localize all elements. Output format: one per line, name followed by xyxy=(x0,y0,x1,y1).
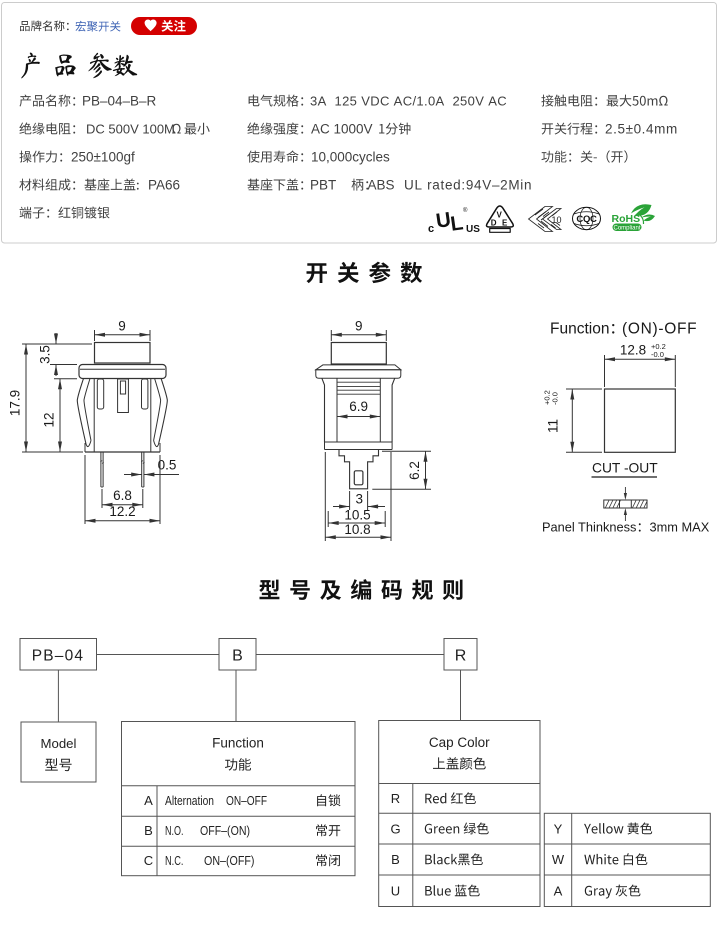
svg-text:9: 9 xyxy=(118,319,126,334)
svg-text:10.5: 10.5 xyxy=(344,508,370,523)
svg-text:AC 1000V: AC 1000V xyxy=(311,122,373,137)
svg-text:ABS: ABS xyxy=(368,178,395,193)
svg-text:2.5±0.4mm: 2.5±0.4mm xyxy=(605,122,678,137)
svg-text:9: 9 xyxy=(355,319,363,334)
svg-text:D: D xyxy=(491,218,497,227)
svg-text:6.8: 6.8 xyxy=(113,488,132,503)
svg-text:10: 10 xyxy=(552,215,562,225)
svg-text:E: E xyxy=(502,218,508,227)
svg-text:CUT -OUT: CUT -OUT xyxy=(592,461,658,476)
svg-text:11: 11 xyxy=(546,419,561,433)
svg-text:3.5: 3.5 xyxy=(38,345,53,364)
svg-text:PBT: PBT xyxy=(310,178,336,193)
svg-text:-0.0: -0.0 xyxy=(551,392,560,405)
svg-text:US: US xyxy=(466,224,480,235)
svg-text:12: 12 xyxy=(42,412,57,427)
svg-text:B: B xyxy=(232,648,243,665)
svg-text:ON–(OFF): ON–(OFF) xyxy=(204,854,255,868)
svg-text:ON–OFF: ON–OFF xyxy=(226,794,267,808)
svg-text:C: C xyxy=(144,853,153,868)
svg-text:®: ® xyxy=(463,207,468,214)
svg-text:R: R xyxy=(455,648,467,665)
svg-text:Function: Function xyxy=(212,736,264,751)
svg-text:3: 3 xyxy=(355,492,363,507)
svg-text:N.O.: N.O. xyxy=(165,824,184,838)
svg-text:B: B xyxy=(144,823,153,838)
svg-text:17.9: 17.9 xyxy=(8,390,23,416)
svg-text:(ON)-OFF: (ON)-OFF xyxy=(622,321,697,338)
svg-text:A: A xyxy=(554,884,563,899)
svg-text:6.9: 6.9 xyxy=(349,399,368,414)
svg-text:c: c xyxy=(428,223,434,235)
svg-text:12.8: 12.8 xyxy=(620,343,646,358)
svg-text:3A 125 VDC AC/1.0A 250V AC: 3A 125 VDC AC/1.0A 250V AC xyxy=(310,94,507,109)
svg-text:250±100gf: 250±100gf xyxy=(71,150,135,165)
svg-text:R: R xyxy=(391,791,400,806)
svg-text:3mm MAX: 3mm MAX xyxy=(650,520,710,535)
svg-text:W: W xyxy=(552,852,565,867)
svg-text:B: B xyxy=(391,852,400,867)
svg-text:-0.0: -0.0 xyxy=(651,350,664,359)
svg-text:PA66: PA66 xyxy=(148,178,180,193)
svg-text:Y: Y xyxy=(554,821,563,836)
svg-text:A: A xyxy=(144,793,153,808)
svg-text:PB–04: PB–04 xyxy=(32,648,85,665)
svg-text:UL rated:94V–2Min: UL rated:94V–2Min xyxy=(404,178,532,193)
svg-text:10,000cycles: 10,000cycles xyxy=(311,150,390,165)
svg-text:Alternation: Alternation xyxy=(165,794,214,808)
svg-text:12.2: 12.2 xyxy=(109,504,135,519)
svg-text:10.8: 10.8 xyxy=(344,522,370,537)
svg-text:DC 500V 100M: DC 500V 100M xyxy=(86,122,175,137)
svg-text:6.2: 6.2 xyxy=(407,461,422,480)
svg-text:PB–04–B–R: PB–04–B–R xyxy=(82,94,157,109)
svg-text:OFF–(ON): OFF–(ON) xyxy=(200,824,250,838)
svg-text:Function: Function xyxy=(550,321,609,338)
svg-text:Cap Color: Cap Color xyxy=(429,735,490,750)
svg-text:Model: Model xyxy=(41,736,77,751)
svg-text:U: U xyxy=(391,884,400,899)
svg-text:N.C.: N.C. xyxy=(165,854,184,868)
svg-text:G: G xyxy=(390,821,400,836)
svg-text:Panel Thinkness: Panel Thinkness xyxy=(542,520,636,535)
svg-text:CQC: CQC xyxy=(576,214,597,225)
svg-text:Compliant: Compliant xyxy=(613,226,640,232)
